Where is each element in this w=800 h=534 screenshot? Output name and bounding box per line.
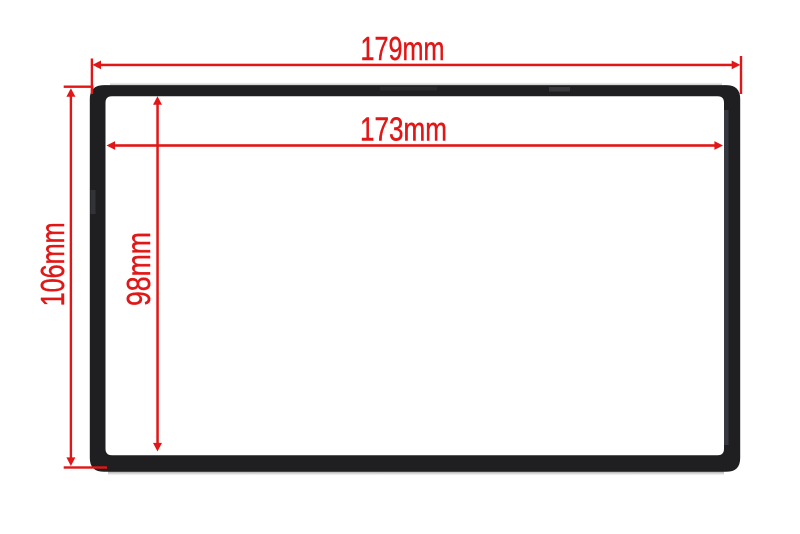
svg-text:106mm: 106mm bbox=[34, 222, 71, 306]
svg-text:173mm: 173mm bbox=[360, 110, 447, 147]
svg-text:179mm: 179mm bbox=[361, 30, 445, 67]
svg-text:98mm: 98mm bbox=[120, 232, 157, 306]
